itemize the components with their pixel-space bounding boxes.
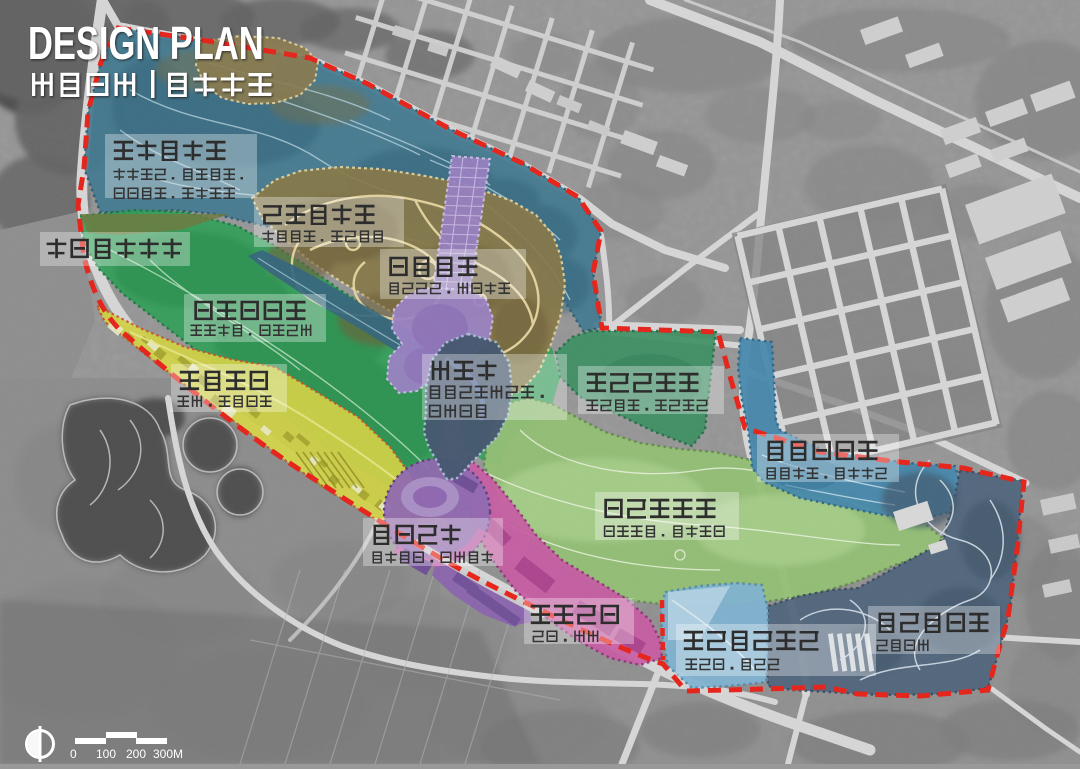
svg-text:0: 0 <box>70 747 77 761</box>
svg-text:200: 200 <box>126 747 146 761</box>
svg-text:100: 100 <box>96 747 116 761</box>
svg-text:DESIGN PLAN: DESIGN PLAN <box>28 17 264 69</box>
svg-text:300M: 300M <box>153 747 183 761</box>
